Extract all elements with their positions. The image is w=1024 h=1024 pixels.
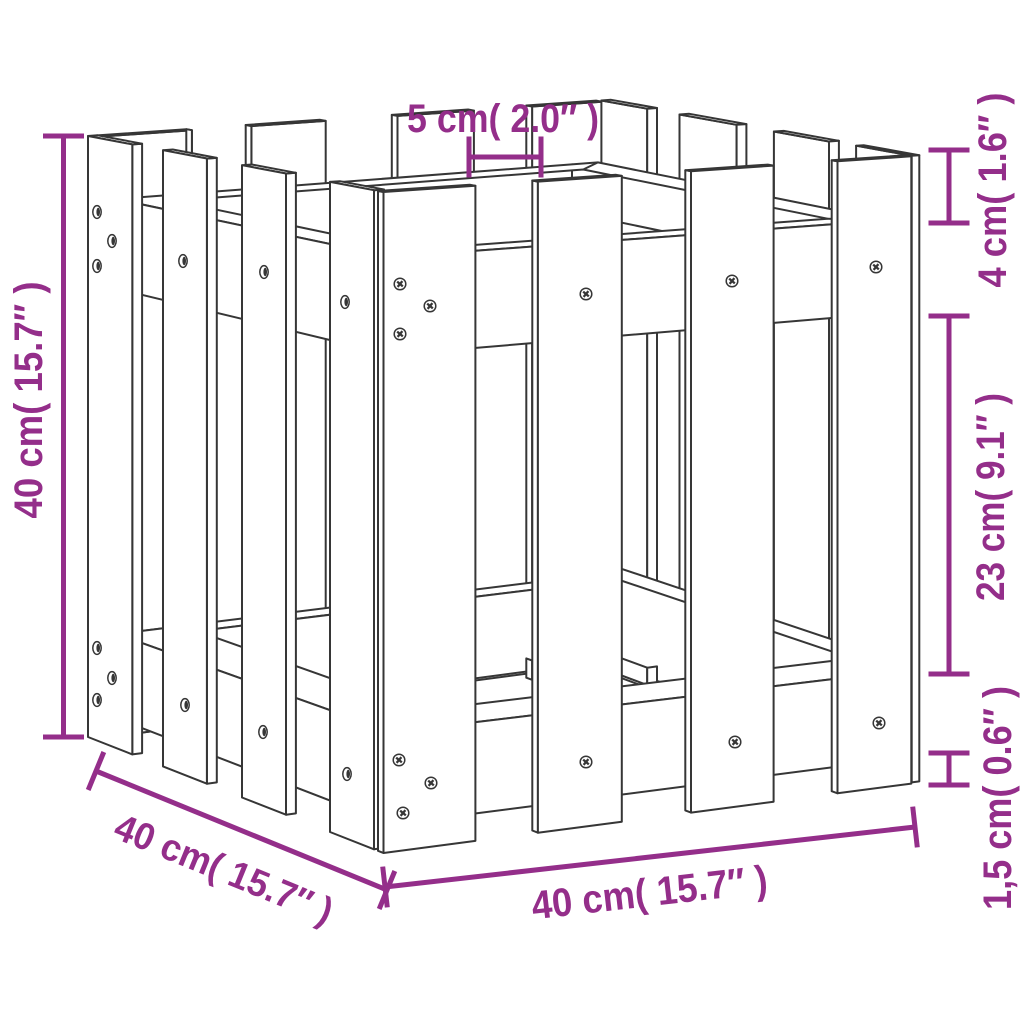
svg-text:4 cm( 1.6″ ): 4 cm( 1.6″ ) xyxy=(971,93,1015,288)
svg-text:40 cm( 15.7″ ): 40 cm( 15.7″ ) xyxy=(7,282,51,519)
svg-text:23 cm( 9.1″ ): 23 cm( 9.1″ ) xyxy=(969,393,1013,601)
svg-text:5 cm( 2.0″ ): 5 cm( 2.0″ ) xyxy=(407,97,599,141)
svg-text:1,5 cm( 0.6″ ): 1,5 cm( 0.6″ ) xyxy=(976,686,1020,910)
